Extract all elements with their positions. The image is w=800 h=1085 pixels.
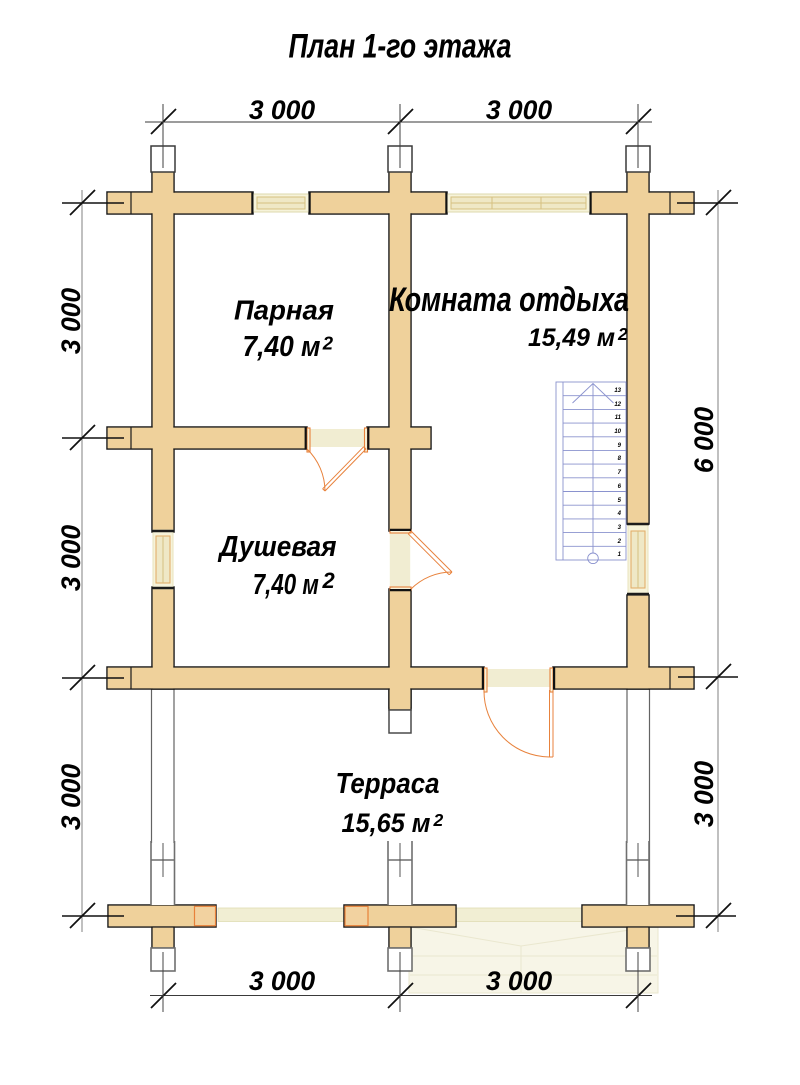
svg-text:7,40 м: 7,40 м [253, 569, 319, 601]
svg-text:11: 11 [615, 415, 622, 421]
svg-text:6: 6 [618, 484, 622, 490]
svg-text:2: 2 [322, 568, 336, 593]
svg-text:3 000: 3 000 [249, 95, 316, 125]
svg-text:3 000: 3 000 [486, 95, 553, 125]
svg-text:15,65 м: 15,65 м [342, 808, 431, 838]
svg-text:3 000: 3 000 [56, 764, 86, 831]
svg-text:2: 2 [433, 810, 444, 830]
svg-text:2: 2 [322, 333, 334, 354]
svg-text:Душевая: Душевая [217, 531, 337, 563]
svg-text:4: 4 [617, 511, 622, 517]
svg-text:5: 5 [618, 498, 622, 504]
svg-text:8: 8 [618, 456, 622, 462]
svg-text:3: 3 [618, 525, 622, 531]
svg-text:1: 1 [618, 552, 622, 558]
svg-text:12: 12 [614, 402, 621, 408]
svg-text:6 000: 6 000 [689, 407, 719, 474]
svg-text:9: 9 [618, 443, 622, 449]
svg-text:Комната отдыха: Комната отдыха [389, 281, 629, 319]
svg-text:План 1-го этажа: План 1-го этажа [289, 28, 512, 66]
svg-text:3 000: 3 000 [56, 288, 86, 355]
svg-text:3 000: 3 000 [56, 525, 86, 592]
svg-text:7: 7 [618, 470, 622, 476]
svg-text:10: 10 [614, 429, 621, 435]
svg-text:2: 2 [617, 324, 628, 344]
svg-text:Терраса: Терраса [336, 768, 440, 800]
svg-text:3 000: 3 000 [249, 966, 316, 996]
svg-text:13: 13 [614, 388, 621, 394]
svg-text:3 000: 3 000 [689, 761, 719, 828]
svg-text:Парная: Парная [234, 295, 334, 326]
svg-text:7,40 м: 7,40 м [243, 331, 321, 363]
svg-text:2: 2 [617, 539, 622, 545]
svg-text:15,49 м: 15,49 м [528, 324, 615, 352]
svg-text:3 000: 3 000 [486, 966, 553, 996]
